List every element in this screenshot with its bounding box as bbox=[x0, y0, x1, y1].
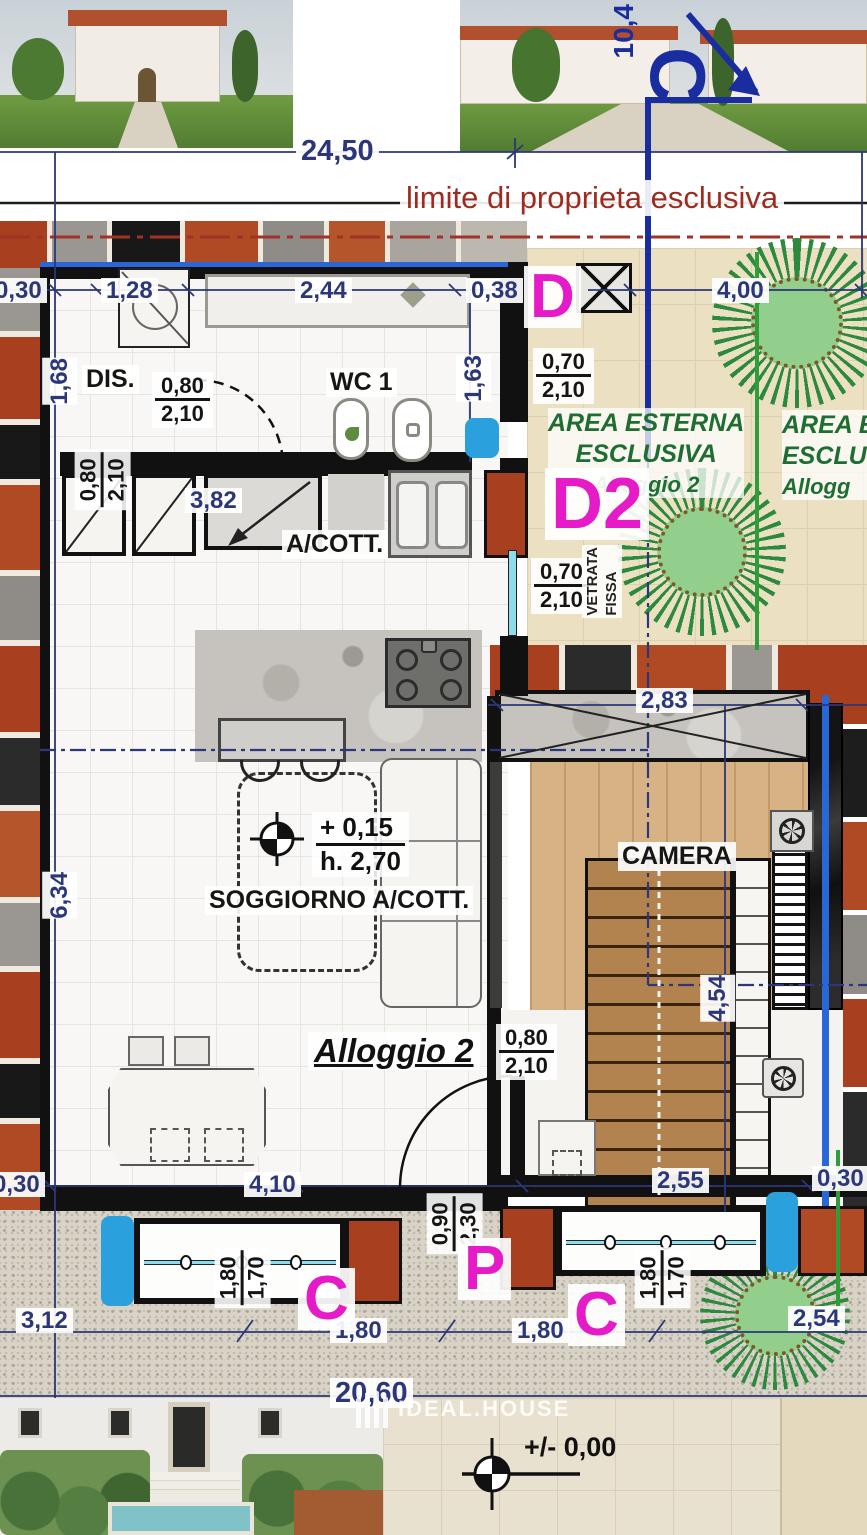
dim-163: 1,63 bbox=[456, 355, 491, 402]
dim-454: 4,54 bbox=[700, 975, 735, 1022]
door-dim-left: 0,80 2,10 bbox=[75, 449, 131, 510]
window-vetrata-width: 0,70 bbox=[534, 559, 589, 587]
dim-255: 2,55 bbox=[652, 1168, 709, 1193]
floor-plan-sheet: 24,50 limite di proprieta esclusiva 10,4… bbox=[0, 0, 867, 1535]
window-sl-height: 1,70 bbox=[244, 1256, 269, 1299]
window-vetrata-height: 2,10 bbox=[540, 587, 583, 612]
door-dim-camera: 0,80 2,10 bbox=[496, 1024, 557, 1080]
fissa-word: FISSA bbox=[603, 547, 620, 616]
vetrata-fissa-label: VETRATA FISSA bbox=[582, 545, 622, 618]
dim-128: 1,28 bbox=[101, 278, 158, 303]
window-sr-width: 1,80 bbox=[636, 1250, 664, 1305]
area1-line1: AREA ESTERNA bbox=[548, 408, 744, 439]
area2-line3: Allogg bbox=[782, 473, 867, 501]
level-value: + 0,15 bbox=[316, 812, 405, 846]
dim-244: 2,44 bbox=[295, 278, 352, 303]
room-label-camera: CAMERA bbox=[618, 842, 736, 871]
dim-030-bottom-right: 0,30 bbox=[812, 1166, 867, 1191]
dim-382: 3,82 bbox=[185, 488, 242, 513]
room-label-soggiorno: SOGGIORNO A/COTT. bbox=[205, 886, 473, 915]
window-east-top-height: 2,10 bbox=[542, 377, 585, 402]
door-left-height: 2,10 bbox=[104, 458, 129, 501]
dim-168: 1,68 bbox=[42, 358, 77, 405]
section-marker-d: D bbox=[524, 266, 581, 328]
area2-line1: AREA ES bbox=[782, 410, 867, 441]
dim-410: 4,10 bbox=[244, 1172, 301, 1197]
watermark-label: IDEAL.HOUSE bbox=[398, 1396, 570, 1422]
pillar-marker-south-right bbox=[766, 1192, 798, 1272]
door-dis-height: 2,10 bbox=[161, 401, 204, 426]
unit-label-alloggio2: Alloggio 2 bbox=[308, 1032, 480, 1070]
dim-030-top: 0,30 bbox=[0, 278, 47, 303]
dim-total-top: 24,50 bbox=[296, 136, 379, 166]
dimension-lines-layer bbox=[0, 0, 867, 1535]
dim-038: 0,38 bbox=[466, 278, 523, 303]
dim-634: 6,34 bbox=[42, 872, 77, 919]
door-dim-dis: 0,80 2,10 bbox=[152, 372, 213, 428]
section-marker-c-top: C bbox=[639, 47, 717, 103]
section-marker-d2: D2 bbox=[545, 468, 649, 540]
window-dim-south-right: 1,80 1,70 bbox=[635, 1247, 691, 1308]
room-label-dis: DIS. bbox=[82, 365, 139, 394]
pillar-marker-south-left bbox=[101, 1216, 134, 1306]
dim-312: 3,12 bbox=[16, 1308, 73, 1333]
dim-283: 2,83 bbox=[636, 688, 693, 713]
door-entrance-width: 0,90 bbox=[428, 1196, 456, 1251]
dim-254: 2,54 bbox=[788, 1306, 845, 1331]
section-marker-c-right: C bbox=[568, 1284, 625, 1346]
door-camera-height: 2,10 bbox=[505, 1053, 548, 1078]
window-dim-south-left: 1,80 1,70 bbox=[215, 1247, 271, 1308]
door-camera-width: 0,80 bbox=[499, 1025, 554, 1053]
area2-line2: ESCLU bbox=[782, 441, 867, 472]
floor-level-symbol bbox=[250, 812, 304, 866]
dim-180-right: 1,80 bbox=[512, 1318, 569, 1343]
window-east-top-width: 0,70 bbox=[536, 349, 591, 377]
pillar-marker-east bbox=[465, 418, 499, 458]
vetrata-word: VETRATA bbox=[584, 547, 601, 616]
dim-030-bottom-left: 0,30 bbox=[0, 1172, 45, 1197]
door-left-width: 0,80 bbox=[76, 452, 104, 507]
window-dim-east-top: 0,70 2,10 bbox=[533, 348, 594, 404]
area-esterna-2-label: AREA ES ESCLU Allogg bbox=[782, 410, 867, 500]
window-sl-width: 1,80 bbox=[216, 1250, 244, 1305]
boundary-label: limite di proprieta esclusiva bbox=[400, 180, 784, 216]
height-value: h. 2,70 bbox=[316, 846, 405, 877]
section-marker-c-left: C bbox=[298, 1268, 355, 1330]
room-label-acott: A/COTT. bbox=[282, 530, 387, 559]
ground-level-label: +/- 0,00 bbox=[524, 1432, 616, 1463]
dim-right-vertical: 10,4 bbox=[604, 4, 643, 59]
door-dis-width: 0,80 bbox=[155, 373, 210, 401]
dim-400: 4,00 bbox=[712, 278, 769, 303]
room-label-wc: WC 1 bbox=[326, 368, 397, 397]
section-marker-p: P bbox=[458, 1238, 511, 1300]
floor-level-label: + 0,15 h. 2,70 bbox=[312, 812, 409, 877]
window-sr-height: 1,70 bbox=[664, 1256, 689, 1299]
